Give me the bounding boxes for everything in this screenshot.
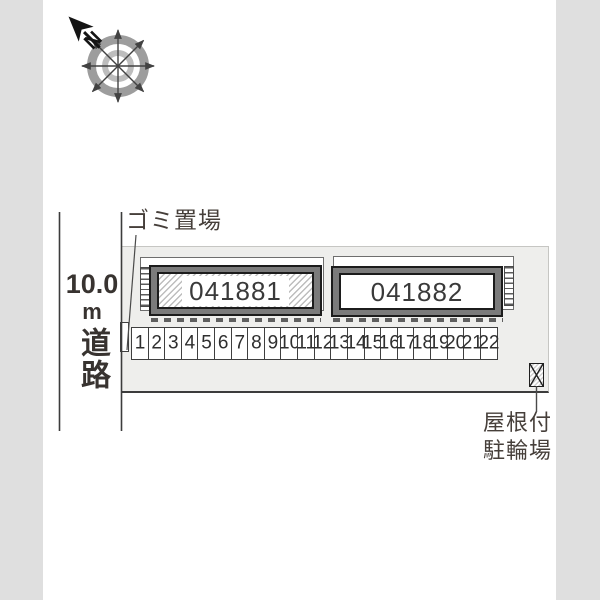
bicycle-parking-label-line2: 駐輪場 — [483, 437, 552, 465]
bicycle-parking-label: 屋根付 駐輪場 — [483, 409, 552, 465]
parking-stall-number: 6 — [218, 332, 229, 354]
parking-stall: 8 — [247, 327, 265, 360]
road-distance-label: 10.0 — [60, 269, 124, 299]
parking-stall: 3 — [164, 327, 182, 360]
building-1: 041881 — [149, 265, 322, 316]
parking-row: 12345678910111213141516171819202122 — [131, 327, 498, 360]
bicycle-parking-icon — [529, 363, 544, 387]
building-1-body: 041881 — [157, 272, 314, 309]
garbage-area-label: ゴミ置場 — [126, 201, 222, 235]
parking-stall-number: 1 — [135, 332, 146, 354]
parking-stall-number: 5 — [201, 332, 212, 354]
parking-stall: 22 — [480, 327, 498, 360]
parking-stall: 2 — [148, 327, 166, 360]
parking-stall: 5 — [197, 327, 215, 360]
parking-stall-number: 22 — [478, 332, 499, 354]
road-label: 10.0 m 道路 — [60, 269, 124, 391]
parking-stall-number: 3 — [168, 332, 179, 354]
building-1-dashed-line — [151, 318, 321, 322]
bicycle-parking-label-line1: 屋根付 — [483, 409, 552, 437]
parking-stall: 7 — [231, 327, 249, 360]
compass-icon: N — [53, 6, 183, 128]
parking-stall-number: 7 — [234, 332, 245, 354]
road-unit-label: m — [60, 299, 124, 325]
parking-stall-number: 4 — [185, 332, 196, 354]
parking-stall-number: 9 — [268, 332, 279, 354]
left-margin-strip — [0, 0, 43, 600]
building-2-body: 041882 — [339, 273, 495, 310]
building-2-dashed-line — [333, 318, 503, 322]
parking-stall-number: 8 — [251, 332, 262, 354]
parking-stall: 6 — [214, 327, 232, 360]
building-1-number: 041881 — [182, 276, 289, 306]
parking-stall: 1 — [131, 327, 149, 360]
parking-stall: 4 — [181, 327, 199, 360]
road-name-label: 道路 — [76, 327, 108, 391]
building-2-number: 041882 — [364, 277, 471, 307]
parking-stall-number: 2 — [151, 332, 162, 354]
garbage-area-box — [120, 322, 129, 352]
right-margin-strip — [556, 0, 600, 600]
stair-icon-building-2 — [504, 266, 514, 306]
building-2: 041882 — [331, 266, 503, 317]
